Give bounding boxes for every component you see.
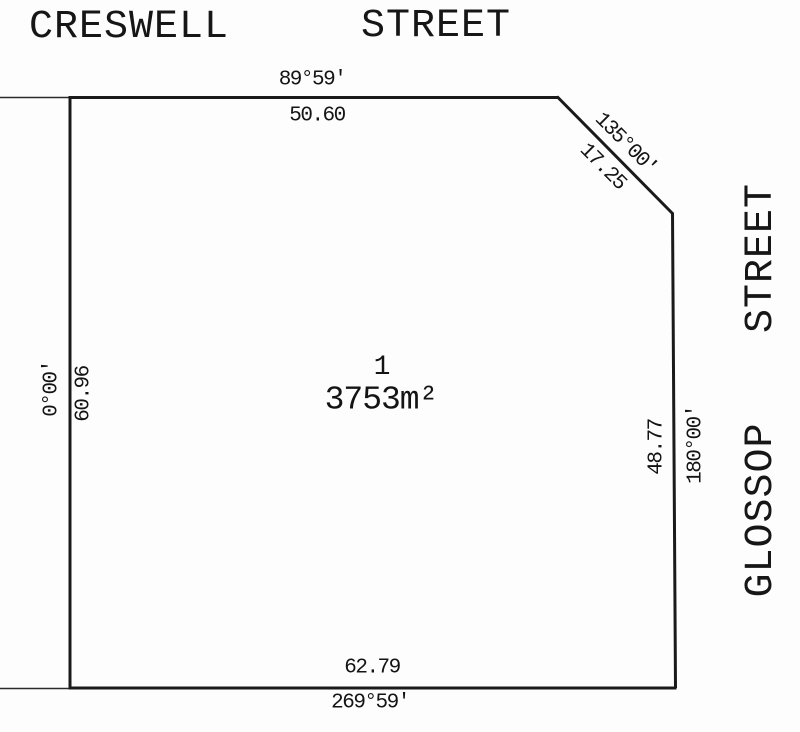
east-boundary-line	[673, 213, 676, 689]
lot-area-label: 3753m²	[325, 384, 438, 417]
south-bearing-label: 269°59'	[331, 693, 409, 714]
boundary-drawing	[0, 0, 800, 732]
street-name-glossop: GLOSSOP	[742, 422, 782, 597]
survey-plan: CRESWELL STREET STREET GLOSSOP 89°59' 50…	[0, 0, 800, 732]
west-distance-label: 60.96	[74, 366, 95, 422]
south-distance-label: 62.79	[344, 658, 400, 679]
north-distance-label: 50.60	[289, 106, 345, 127]
north-bearing-label: 89°59'	[279, 70, 346, 91]
street-name-glossop-street-word: STREET	[742, 183, 782, 333]
street-name-creswell: CRESWELL	[29, 8, 229, 48]
west-bearing-label: 0°00'	[42, 361, 63, 417]
east-distance-label: 48.77	[647, 419, 668, 475]
east-bearing-label: 180°00'	[686, 406, 707, 484]
street-name-creswell-street-word: STREET	[361, 7, 511, 47]
lot-number-label: 1	[374, 354, 391, 382]
